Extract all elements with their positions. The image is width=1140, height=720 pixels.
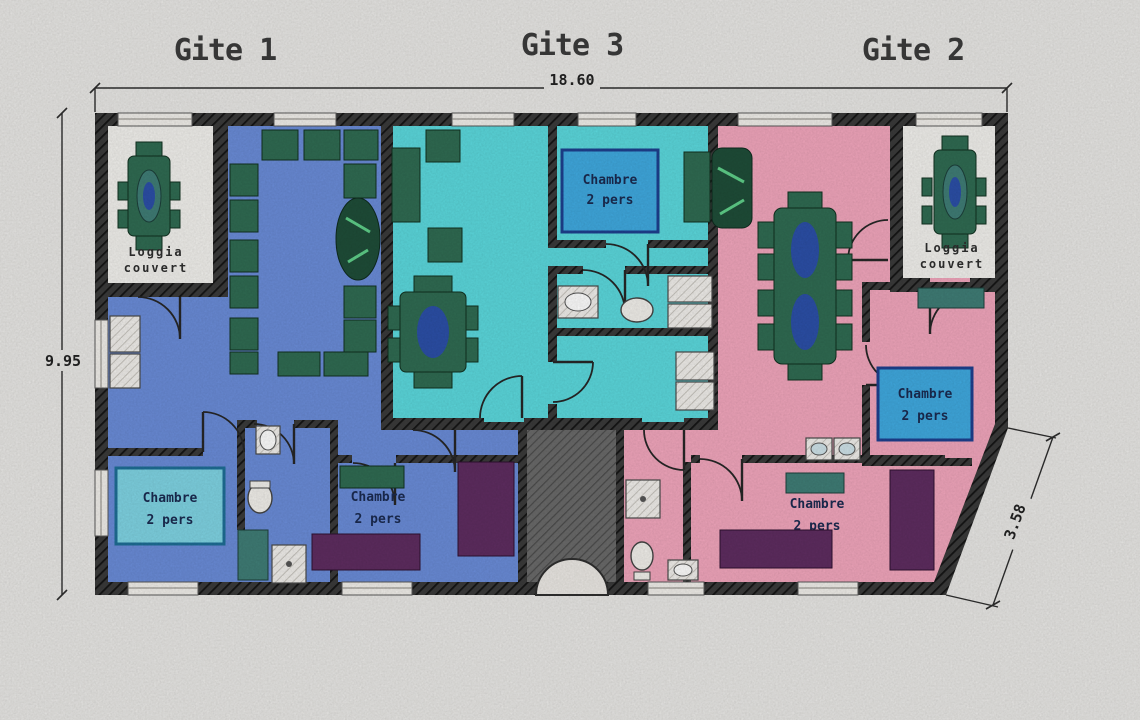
room-label: Chambre	[790, 497, 845, 512]
gite1-title: Gite 1	[174, 33, 276, 68]
dresser	[340, 466, 404, 488]
bed	[312, 534, 420, 570]
sink-icon	[256, 426, 280, 454]
dimension-top: 18.60	[90, 70, 1012, 112]
window-top-3	[578, 113, 636, 126]
loggia-label: Loggia	[924, 241, 979, 255]
window-bottom-2	[342, 582, 412, 595]
washer	[668, 304, 712, 328]
window-bottom-3	[648, 582, 704, 595]
dimension-height-label: 9.95	[45, 352, 81, 370]
bench	[918, 288, 984, 308]
window-top-loggia-right	[916, 113, 982, 126]
room-label: Chambre	[143, 491, 198, 506]
bed	[720, 530, 832, 568]
gite2-title: Gite 2	[862, 33, 964, 68]
floor-plan-page: Gite 1 Gite 3 Gite 2 18.60 9.95 3.58	[0, 0, 1140, 720]
room-label: Chambre	[898, 387, 953, 402]
room-label: Chambre	[583, 173, 638, 188]
window-top-1	[274, 113, 336, 126]
window-bottom-4	[798, 582, 858, 595]
bed	[458, 462, 514, 556]
window-top-2	[452, 113, 514, 126]
bathroom-cabinet	[238, 530, 268, 580]
room-label: 2 pers	[902, 409, 949, 424]
gite-titles: Gite 1 Gite 3 Gite 2	[174, 28, 964, 68]
window-top-loggia-left	[118, 113, 192, 126]
gite1-plant	[336, 198, 380, 280]
room-label: 2 pers	[587, 193, 634, 208]
dresser	[786, 473, 844, 493]
gite3-bedroom: Chambre 2 pers	[562, 150, 710, 232]
washer	[668, 276, 712, 302]
bed	[116, 468, 224, 544]
shower-icon	[272, 545, 306, 583]
gite1-bedroom1: Chambre 2 pers	[116, 468, 224, 544]
toilet-icon	[631, 542, 653, 580]
gite2-bedroom-right: Chambre 2 pers	[878, 368, 972, 440]
appliance	[676, 352, 714, 380]
bed	[562, 150, 658, 232]
window-left-2	[95, 470, 108, 536]
gite3-title: Gite 3	[521, 28, 623, 63]
bed	[878, 368, 972, 440]
window-left-1	[95, 320, 108, 388]
dimension-left: 9.95	[40, 108, 86, 600]
window-top-4	[738, 113, 832, 126]
sink-icon	[668, 560, 698, 580]
appliance	[676, 382, 714, 410]
sink-icon	[558, 286, 598, 318]
loggia-label: Loggia	[128, 245, 183, 259]
bed	[890, 470, 934, 570]
loggia-label: couvert	[124, 261, 189, 275]
wardrobe	[684, 152, 710, 222]
gite2-plant	[712, 148, 752, 228]
room-label: 2 pers	[355, 512, 402, 527]
toilet-icon	[248, 481, 272, 513]
dimension-width-label: 18.60	[549, 71, 594, 89]
loggia-label: couvert	[920, 257, 985, 271]
room-label: Chambre	[351, 490, 406, 505]
window-bottom-1	[128, 582, 198, 595]
toilet-icon	[621, 298, 653, 322]
floor-plan-svg: Gite 1 Gite 3 Gite 2 18.60 9.95 3.58	[0, 0, 1140, 720]
room-label: 2 pers	[147, 513, 194, 528]
shower-icon	[626, 480, 660, 518]
